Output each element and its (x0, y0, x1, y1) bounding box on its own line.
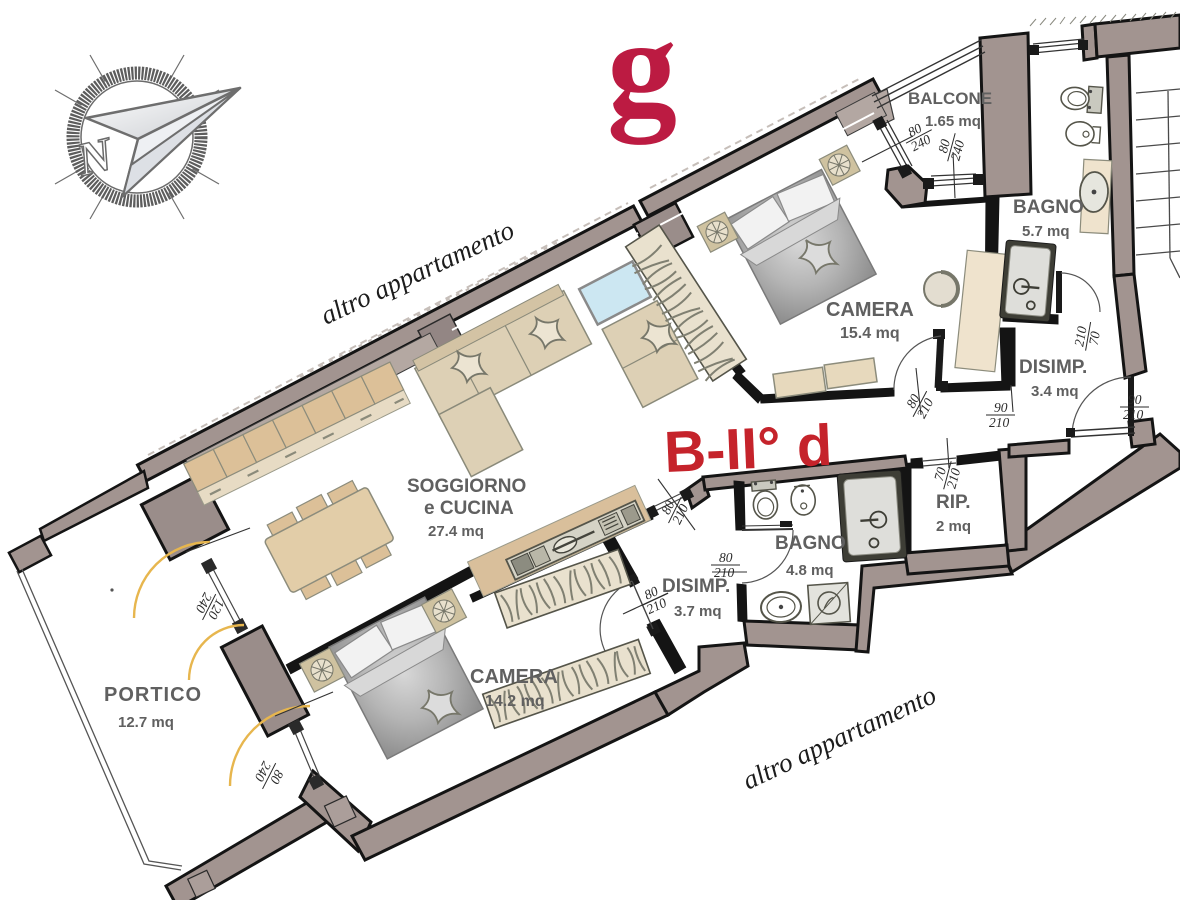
svg-text:CAMERA: CAMERA (470, 666, 558, 688)
svg-text:DISIMP.: DISIMP. (1019, 357, 1087, 378)
svg-text:B-II° d: B-II° d (663, 413, 834, 485)
svg-text:RIP.: RIP. (936, 492, 971, 513)
svg-text:1.65 mq: 1.65 mq (925, 113, 981, 130)
svg-text:SOGGIORNO: SOGGIORNO (407, 476, 526, 497)
svg-text:12.7 mq: 12.7 mq (118, 714, 174, 731)
svg-text:210: 210 (989, 415, 1010, 430)
svg-text:e CUCINA: e CUCINA (424, 498, 514, 519)
svg-text:90: 90 (994, 400, 1008, 415)
svg-text:2 mq: 2 mq (936, 518, 971, 535)
svg-text:BAGNO: BAGNO (775, 533, 846, 554)
svg-text:210: 210 (714, 565, 735, 580)
svg-text:14.2 mq: 14.2 mq (485, 693, 545, 710)
svg-text:15.4 mq: 15.4 mq (840, 325, 900, 342)
svg-text:g: g (607, 0, 677, 145)
svg-text:CAMERA: CAMERA (826, 299, 914, 321)
svg-text:80: 80 (719, 550, 733, 565)
svg-text:3.4 mq: 3.4 mq (1031, 383, 1079, 400)
svg-text:PORTICO: PORTICO (104, 684, 202, 706)
svg-text:5.7 mq: 5.7 mq (1022, 223, 1070, 240)
svg-text:90: 90 (1128, 392, 1142, 407)
svg-text:BALCONE: BALCONE (908, 89, 992, 108)
svg-text:4.8 mq: 4.8 mq (786, 562, 834, 579)
svg-text:3.7 mq: 3.7 mq (674, 603, 722, 620)
svg-text:210: 210 (1123, 407, 1144, 422)
svg-text:27.4 mq: 27.4 mq (428, 523, 484, 540)
svg-text:BAGNO: BAGNO (1013, 197, 1084, 218)
